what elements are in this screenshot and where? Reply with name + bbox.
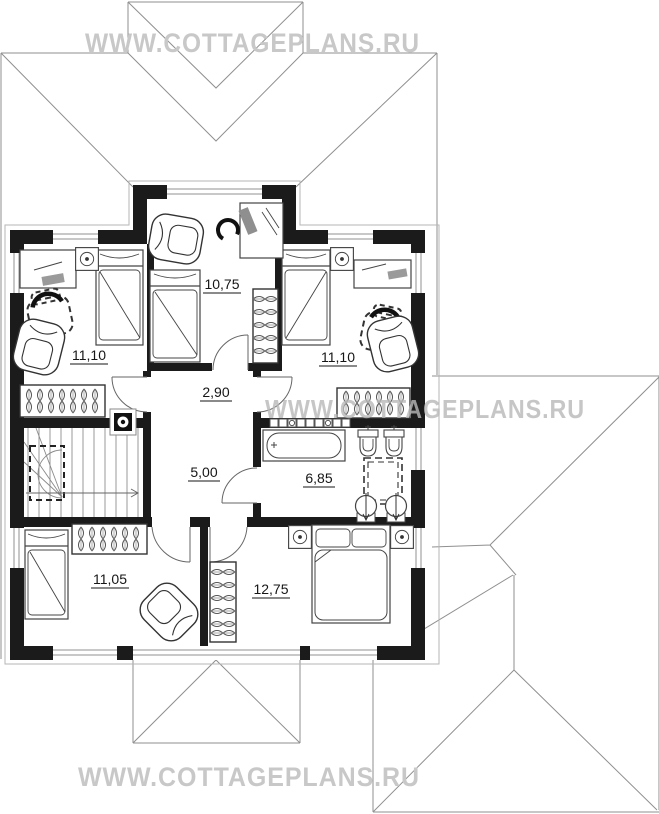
watermark-middle: WWW.COTTAGEPLANS.RU — [265, 394, 585, 424]
bed-symbol — [96, 250, 143, 345]
watermark-bottom: WWW.COTTAGEPLANS.RU — [78, 762, 420, 792]
partition-lower-rooms — [200, 527, 208, 646]
room-area-label-master-bedroom: 12,75 — [253, 581, 288, 597]
desk-symbol — [354, 260, 411, 288]
bathtub-symbol — [263, 430, 345, 461]
room-area-label-bathroom: 6,85 — [305, 470, 332, 486]
room-area-label-study: 10,75 — [204, 276, 239, 292]
chimney-symbol — [110, 409, 136, 435]
wardrobe-symbol — [253, 289, 278, 363]
bottom-dormer-roof-lines — [133, 660, 300, 743]
nightstand-symbol — [76, 248, 99, 271]
watermark-top: WWW.COTTAGEPLANS.RU — [85, 28, 420, 58]
room-area-label-bedroom-left: 11,10 — [72, 347, 106, 363]
nightstand-symbol — [391, 526, 414, 549]
room-area-label-bedroom-right: 11,10 — [321, 349, 355, 365]
desk-symbol — [238, 203, 283, 258]
nightstand-symbol — [331, 248, 354, 271]
room-area-label-bedroom-lower-left: 11,05 — [93, 571, 127, 587]
floor-plan-canvas: 10,75 11,10 11,10 2,90 5,00 6,85 11,05 1… — [0, 0, 659, 814]
room-area-label-corridor: 2,90 — [202, 384, 229, 400]
armchair-symbol — [146, 212, 205, 266]
wardrobe-symbol — [20, 385, 105, 417]
wardrobe-symbol — [72, 524, 147, 554]
nightstand-symbol — [289, 526, 312, 549]
bed-symbol — [282, 250, 330, 345]
wall-left — [10, 230, 24, 660]
room-area-label-hall: 5,00 — [190, 464, 217, 480]
toilet-symbol — [358, 425, 378, 456]
floor-plan-page: 10,75 11,10 11,10 2,90 5,00 6,85 11,05 1… — [0, 0, 659, 814]
bed-symbol — [25, 530, 68, 619]
bed-symbol — [150, 270, 200, 362]
double-bed-symbol — [312, 525, 390, 623]
bidet-symbol — [384, 425, 404, 456]
desk-symbol — [20, 250, 76, 288]
wardrobe-symbol — [210, 562, 236, 642]
